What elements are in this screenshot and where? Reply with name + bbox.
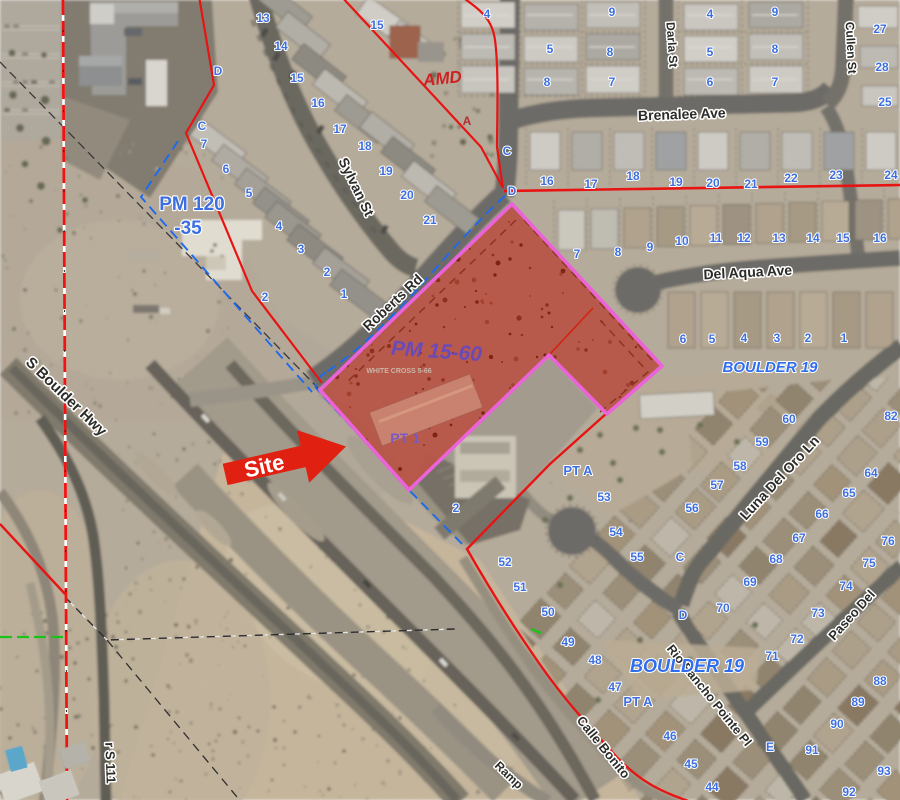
svg-text:53: 53: [597, 490, 611, 504]
svg-text:70: 70: [716, 601, 730, 615]
svg-text:D: D: [508, 184, 517, 198]
svg-text:13: 13: [256, 11, 270, 25]
svg-text:16: 16: [540, 174, 554, 188]
svg-text:88: 88: [873, 674, 887, 688]
svg-text:92: 92: [842, 785, 856, 799]
svg-text:9: 9: [647, 240, 654, 254]
svg-text:25: 25: [878, 95, 892, 109]
svg-text:2: 2: [805, 331, 812, 345]
svg-text:2: 2: [453, 501, 460, 515]
svg-text:BOULDER 19: BOULDER 19: [722, 359, 818, 376]
svg-text:3: 3: [298, 242, 305, 256]
svg-text:15: 15: [290, 71, 304, 85]
svg-text:89: 89: [851, 695, 865, 709]
svg-text:46: 46: [663, 729, 677, 743]
svg-text:1: 1: [341, 287, 348, 301]
svg-text:16: 16: [311, 96, 325, 110]
svg-text:17: 17: [333, 122, 347, 136]
svg-text:54: 54: [609, 525, 623, 539]
svg-text:C: C: [198, 119, 207, 133]
svg-text:90: 90: [830, 717, 844, 731]
svg-text:4: 4: [707, 7, 714, 21]
svg-text:68: 68: [769, 552, 783, 566]
svg-text:56: 56: [685, 501, 699, 515]
svg-text:5: 5: [709, 332, 716, 346]
svg-text:4: 4: [484, 7, 491, 21]
svg-text:-35: -35: [174, 218, 202, 239]
svg-text:74: 74: [839, 579, 853, 593]
svg-text:13: 13: [772, 231, 786, 245]
svg-text:24: 24: [884, 168, 898, 182]
svg-text:49: 49: [561, 635, 575, 649]
svg-text:71: 71: [765, 649, 779, 663]
svg-text:8: 8: [544, 75, 551, 89]
svg-text:11: 11: [710, 231, 723, 245]
svg-text:91: 91: [805, 743, 819, 757]
svg-text:C: C: [676, 550, 685, 564]
svg-text:10: 10: [675, 234, 689, 248]
svg-text:18: 18: [626, 169, 640, 183]
svg-text:C: C: [503, 144, 512, 158]
svg-text:60: 60: [782, 412, 796, 426]
svg-text:66: 66: [815, 507, 829, 521]
svg-text:PT 1: PT 1: [390, 430, 420, 446]
svg-text:E: E: [766, 740, 774, 754]
svg-text:18: 18: [358, 139, 372, 153]
svg-text:7: 7: [201, 137, 208, 151]
svg-text:12: 12: [737, 231, 751, 245]
svg-text:4: 4: [741, 331, 748, 345]
svg-text:9: 9: [609, 5, 616, 19]
svg-text:7: 7: [574, 247, 581, 261]
svg-text:72: 72: [790, 632, 804, 646]
svg-text:1: 1: [841, 331, 848, 345]
svg-text:5: 5: [707, 45, 714, 59]
svg-text:PM 120: PM 120: [159, 194, 224, 215]
svg-text:50: 50: [541, 605, 555, 619]
svg-text:55: 55: [630, 550, 644, 564]
svg-text:D: D: [679, 608, 688, 622]
svg-text:59: 59: [755, 435, 769, 449]
svg-text:6: 6: [707, 75, 714, 89]
svg-text:51: 51: [513, 580, 527, 594]
svg-text:8: 8: [607, 45, 614, 59]
svg-text:20: 20: [706, 176, 720, 190]
svg-text:52: 52: [498, 555, 512, 569]
svg-text:PT A: PT A: [623, 694, 653, 709]
svg-text:20: 20: [400, 188, 414, 202]
svg-text:BOULDER 19: BOULDER 19: [630, 656, 744, 676]
svg-text:73: 73: [811, 606, 825, 620]
svg-text:8: 8: [772, 42, 779, 56]
svg-text:21: 21: [744, 177, 758, 191]
svg-text:48: 48: [588, 653, 602, 667]
svg-text:r S 111: r S 111: [102, 742, 118, 784]
svg-text:A: A: [463, 114, 472, 128]
svg-text:D: D: [214, 64, 223, 78]
svg-text:15: 15: [370, 18, 384, 32]
svg-text:Brenalee Ave: Brenalee Ave: [638, 104, 726, 123]
svg-text:WHITE CROSS 5-66: WHITE CROSS 5-66: [366, 368, 431, 375]
svg-text:2: 2: [262, 290, 269, 304]
svg-text:45: 45: [684, 757, 698, 771]
svg-text:22: 22: [784, 171, 798, 185]
svg-text:Cullen St: Cullen St: [843, 21, 860, 74]
svg-text:6: 6: [223, 162, 230, 176]
svg-text:69: 69: [743, 575, 757, 589]
svg-text:5: 5: [547, 42, 554, 56]
svg-text:44: 44: [705, 780, 719, 794]
svg-text:76: 76: [881, 534, 895, 548]
svg-text:27: 27: [873, 22, 887, 36]
svg-text:19: 19: [379, 164, 393, 178]
svg-text:21: 21: [423, 213, 437, 227]
svg-text:17: 17: [584, 177, 598, 191]
svg-text:9: 9: [772, 5, 779, 19]
svg-text:8: 8: [615, 245, 622, 259]
svg-text:57: 57: [710, 478, 724, 492]
svg-text:23: 23: [829, 168, 843, 182]
svg-text:93: 93: [877, 764, 891, 778]
svg-text:82: 82: [884, 409, 898, 423]
svg-text:4: 4: [276, 219, 283, 233]
svg-text:6: 6: [680, 332, 687, 346]
svg-text:2: 2: [324, 265, 331, 279]
svg-text:15: 15: [836, 231, 850, 245]
svg-text:47: 47: [608, 680, 622, 694]
svg-text:58: 58: [733, 459, 747, 473]
svg-text:75: 75: [862, 556, 876, 570]
svg-text:65: 65: [842, 486, 856, 500]
svg-text:28: 28: [875, 60, 889, 74]
svg-text:7: 7: [772, 75, 779, 89]
svg-text:PT A: PT A: [563, 463, 593, 478]
svg-text:19: 19: [669, 175, 683, 189]
svg-text:5: 5: [246, 186, 253, 200]
svg-text:64: 64: [864, 466, 878, 480]
svg-text:7: 7: [609, 75, 616, 89]
svg-text:14: 14: [274, 39, 288, 53]
svg-text:14: 14: [806, 231, 820, 245]
svg-text:3: 3: [774, 331, 781, 345]
svg-text:16: 16: [873, 231, 887, 245]
svg-text:67: 67: [792, 531, 806, 545]
